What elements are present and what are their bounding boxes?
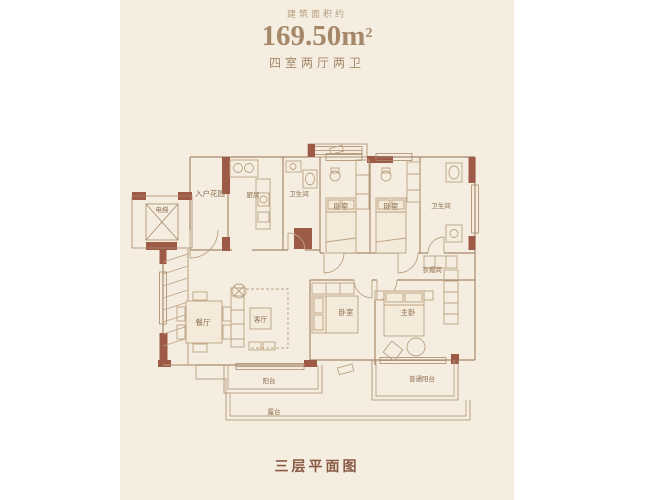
interior-walls xyxy=(190,157,475,365)
room-label-kitchen: 厨房 xyxy=(247,190,260,199)
bedroom-bottom: 卧室 xyxy=(312,283,358,333)
room-label-cloakroom: 衣帽间 xyxy=(422,265,442,274)
room-label-terrace: 露台 xyxy=(268,407,281,416)
room-label-secondary-balcony: 普通阳台 xyxy=(409,374,435,383)
room-label-entry-garden: 入户花园 xyxy=(195,188,225,198)
room-label-bedroom-top-2: 卧室 xyxy=(384,201,399,211)
living-room: 客厅 xyxy=(231,284,288,350)
room-label-dining: 餐厅 xyxy=(196,318,211,327)
kitchen: 厨房 xyxy=(230,160,270,229)
entry-garden: 入户花园 xyxy=(195,188,225,198)
room-label-master: 主卧 xyxy=(401,307,416,317)
room-label-bedroom-bottom: 卧室 xyxy=(339,307,354,317)
terrace: 露台 xyxy=(163,365,470,420)
cloakroom: 衣帽间 xyxy=(422,256,458,324)
room-label-balcony: 阳台 xyxy=(263,376,276,385)
bedroom-top-2: 卧室 xyxy=(376,162,420,253)
bedroom-top-1: 卧室 xyxy=(326,160,369,253)
bathroom-top-right: 卫生间 xyxy=(431,163,462,242)
room-label-bath-top-right: 卫生间 xyxy=(431,201,451,210)
elevator: 电梯 xyxy=(132,196,192,248)
master-bedroom: 主卧 xyxy=(375,291,433,361)
room-label-bedroom-top-1: 卧室 xyxy=(334,201,349,211)
bathroom-top-left: 卫生间 xyxy=(286,161,317,198)
floorplan-svg: 电梯 入户花园 厨房 卫生间 卧室 xyxy=(0,0,667,500)
room-label-living: 客厅 xyxy=(254,315,268,324)
room-label-elevator: 电梯 xyxy=(156,205,170,214)
plan-title: 三层平面图 xyxy=(120,456,514,476)
room-label-bath-top-left: 卫生间 xyxy=(289,189,309,198)
secondary-balcony: 普通阳台 xyxy=(337,360,458,400)
dining-room: 餐厅 xyxy=(177,292,231,352)
